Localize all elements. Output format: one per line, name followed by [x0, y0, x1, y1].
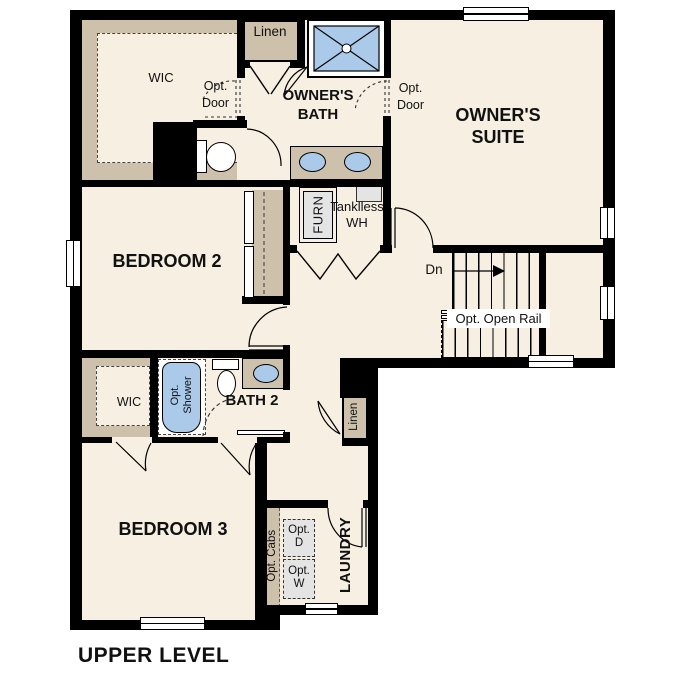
- window-owners-suite-right: [600, 207, 615, 239]
- wall-segment: [363, 500, 368, 508]
- bedroom2-closet: [252, 190, 283, 296]
- sink-owners-bath-right: [344, 152, 371, 172]
- room-label-wic-bed3: WIC: [99, 395, 159, 410]
- wall-segment: [283, 180, 290, 305]
- annotation-tankless-wh: Tanklless WH: [325, 199, 389, 231]
- room-label-bath2: BATH 2: [224, 392, 280, 410]
- wall-segment: [70, 350, 290, 358]
- wall-segment: [70, 10, 82, 630]
- annotation-opt-door-bath: Opt. Door: [391, 80, 430, 114]
- wall-segment: [380, 245, 392, 253]
- page-title: UPPER LEVEL: [78, 644, 338, 669]
- wall-segment: [193, 120, 247, 128]
- wall-segment: [342, 438, 368, 446]
- wall-segment: [368, 358, 378, 615]
- room-label-linen-hall: Linen: [348, 395, 362, 439]
- annotation-opt-shower: Opt. Shower: [169, 374, 195, 416]
- wall-segment: [290, 60, 305, 68]
- wall-segment: [368, 358, 615, 368]
- floor-plan: UPPER LEVEL OWNER'S SUITE OWNER'S BATH B…: [0, 0, 687, 687]
- wall-segment: [433, 245, 615, 253]
- wall-segment: [283, 345, 290, 358]
- wall-segment: [283, 432, 290, 443]
- room-label-owners-suite: OWNER'S SUITE: [428, 104, 568, 148]
- toilet-bowl-owners-bath: [206, 142, 236, 172]
- annotation-opt-cabs: Opt. Cabs: [266, 506, 280, 606]
- room-label-bedroom3: BEDROOM 3: [93, 519, 253, 540]
- wall-segment: [540, 253, 546, 358]
- room-label-linen-upper: Linen: [240, 24, 300, 40]
- annotation-opt-dryer: Opt. D: [283, 524, 315, 550]
- wall-segment: [70, 437, 112, 443]
- annotation-down: Dn: [421, 262, 447, 278]
- sink-owners-bath-left: [299, 152, 326, 172]
- annotation-opt-washer: Opt. W: [283, 565, 315, 591]
- wall-segment: [70, 180, 290, 187]
- wall-segment: [340, 358, 368, 398]
- room-label-wic-owner: WIC: [121, 70, 201, 85]
- window-owners-suite-top: [463, 7, 529, 21]
- room-label-laundry: LAUNDRY: [337, 503, 355, 607]
- wall-segment: [283, 180, 390, 187]
- wall-segment: [283, 358, 290, 390]
- wall-segment: [383, 20, 391, 78]
- bedroom2-closet-door-panel-1: [244, 191, 254, 244]
- window-bedroom3: [140, 617, 205, 630]
- annotation-opt-open-rail: Opt. Open Rail: [447, 309, 550, 328]
- wall-segment: [70, 10, 615, 20]
- window-stairwell-right: [600, 286, 615, 320]
- wall-segment: [153, 122, 197, 180]
- sink-bath2: [253, 364, 279, 383]
- room-label-bedroom2: BEDROOM 2: [88, 251, 246, 272]
- stairs-upper-flight: [452, 253, 540, 310]
- window-bedroom2: [66, 240, 81, 287]
- wall-segment: [237, 60, 250, 68]
- window-stair-landing: [528, 355, 574, 368]
- wall-segment: [383, 116, 391, 187]
- toilet-tank-bath2: [212, 359, 239, 370]
- room-label-owners-bath: OWNER'S BATH: [265, 86, 371, 124]
- wall-segment: [152, 437, 218, 443]
- wall-segment: [255, 443, 267, 630]
- window-laundry: [305, 603, 338, 615]
- wall-segment: [283, 245, 297, 253]
- annotation-opt-door-wic: Opt. Door: [196, 78, 235, 112]
- towel-bar-bath2: [237, 430, 285, 435]
- annotation-furnace: FURN: [310, 186, 325, 244]
